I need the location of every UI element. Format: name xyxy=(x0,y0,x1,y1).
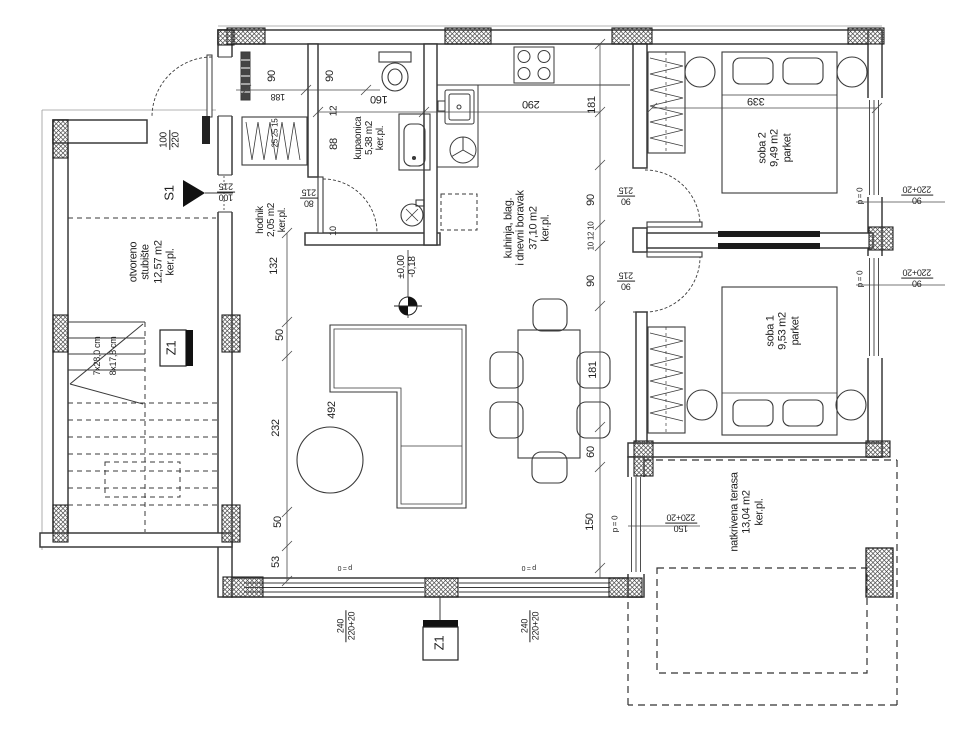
dim-90-hall-a: 90 xyxy=(585,194,597,206)
dim-50-b: 50 xyxy=(272,516,284,528)
room-label-soba2: soba 2 9,49 m2 parket xyxy=(757,129,794,167)
room-label-hodnik: hodnik 2,05 m2 ker.pl. xyxy=(255,203,289,237)
door-size-stairs: 100215 xyxy=(217,181,235,202)
dim-10-12-10: 10 12 10 xyxy=(588,222,597,251)
dim-50-a: 50 xyxy=(274,329,286,341)
stair-spec-treads: 8x17,8 cm xyxy=(108,337,118,376)
door-size-bathroom: 80215 xyxy=(300,187,318,208)
room-label-kuhinja: kuhinja, blag. i dnevni boravak 37,10 m2… xyxy=(502,190,551,265)
level-label: ±0,00 -0,18 xyxy=(396,255,418,278)
dim-90-hall-b: 90 xyxy=(585,275,597,287)
dim-181-b: 181 xyxy=(587,361,599,378)
dim-232: 232 xyxy=(270,419,282,436)
window-size-soba2: 90220+20 xyxy=(901,184,933,205)
window-size-living-b: 240220+20 xyxy=(519,610,540,642)
dim-25-25-15: 25 25 15 xyxy=(272,119,281,148)
dim-132: 132 xyxy=(268,257,280,274)
window-size-living-a: 240220+20 xyxy=(335,610,356,642)
dim-10: 10 xyxy=(328,226,338,235)
door-size-entrance: 100220 xyxy=(158,130,181,150)
section-label-s1: S1 xyxy=(163,185,178,200)
stair-spec-risers: 7x28,0 cm xyxy=(92,337,102,376)
dim-53: 53 xyxy=(270,556,282,568)
parapet-living-b: p = 0 xyxy=(522,563,536,571)
parapet-living-a: p = 0 xyxy=(338,563,352,571)
dim-160: 160 xyxy=(370,93,387,105)
parapet-soba1: p = 0 xyxy=(857,271,866,288)
dim-188: 188 xyxy=(271,92,285,102)
dim-90-closet-a: 90 xyxy=(266,70,278,82)
window-size-soba1: 90220+20 xyxy=(901,267,933,288)
window-size-terasa: 150220+20 xyxy=(665,512,697,533)
labels-layer: otvoreno stubište 12,57 m2 ker.pl.hodnik… xyxy=(0,0,960,750)
section-label-z1-bottom: Z1 xyxy=(433,636,448,651)
room-label-terasa: natkrivena terasa 13,04 m2 ker.pl. xyxy=(729,472,766,551)
parapet-terasa: p = 0 xyxy=(612,516,621,533)
dim-339: 339 xyxy=(747,95,764,107)
dim-492: 492 xyxy=(326,401,338,418)
dim-150: 150 xyxy=(584,513,596,530)
room-label-soba1: soba 1 9,53 m2 parket xyxy=(765,312,802,350)
dim-12: 12 xyxy=(328,106,339,117)
floor-plan-canvas: otvoreno stubište 12,57 m2 ker.pl.hodnik… xyxy=(0,0,960,750)
room-label-kupaonica: kupaonica 5,38 m2 ker.pl. xyxy=(353,117,387,160)
room-label-stubiste: otvoreno stubište 12,57 m2 ker.pl. xyxy=(127,240,176,283)
dim-90-closet-b: 90 xyxy=(324,70,336,82)
door-size-soba1: 90215 xyxy=(617,270,635,291)
door-size-soba2: 90215 xyxy=(617,185,635,206)
section-label-z1-stair: Z1 xyxy=(165,341,180,356)
dim-88: 88 xyxy=(328,138,340,150)
dim-290: 290 xyxy=(522,98,539,110)
parapet-soba2: p = 0 xyxy=(857,188,866,205)
dim-60: 60 xyxy=(585,446,597,458)
dim-181-a: 181 xyxy=(586,96,598,113)
